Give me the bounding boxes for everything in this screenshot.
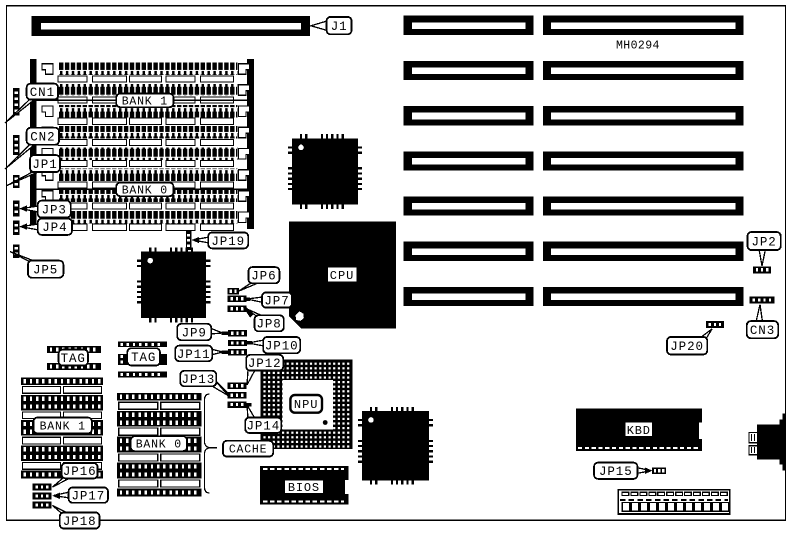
svg-text:TAG: TAG [131,351,156,365]
svg-text:JP19: JP19 [211,235,245,249]
svg-text:MH0294: MH0294 [616,40,660,53]
svg-text:CN2: CN2 [30,131,55,145]
svg-text:JP3: JP3 [42,204,67,218]
svg-text:TAG: TAG [61,352,86,366]
svg-text:JP4: JP4 [42,221,67,235]
svg-text:JP15: JP15 [599,465,633,479]
svg-text:BANK 0: BANK 0 [136,439,182,452]
svg-text:BANK 1: BANK 1 [122,95,168,108]
svg-text:JP7: JP7 [264,294,289,308]
svg-text:JP11: JP11 [177,348,211,362]
svg-text:JP1: JP1 [32,158,57,172]
svg-text:NPU: NPU [294,398,319,412]
svg-text:JP14: JP14 [246,420,280,434]
svg-text:JP17: JP17 [71,490,105,504]
svg-text:JP20: JP20 [670,340,704,354]
svg-text:JP16: JP16 [63,465,97,479]
svg-text:JP8: JP8 [256,318,281,332]
svg-text:JP5: JP5 [33,264,58,278]
svg-text:KBD: KBD [627,424,651,438]
svg-text:JP13: JP13 [181,373,215,387]
svg-text:JP18: JP18 [63,515,97,529]
svg-text:JP10: JP10 [265,340,299,354]
svg-text:BANK 1: BANK 1 [40,421,86,434]
svg-text:JP9: JP9 [182,326,207,340]
svg-text:CN1: CN1 [30,86,55,100]
svg-text:JP12: JP12 [248,357,282,371]
svg-text:J1: J1 [331,20,348,34]
svg-text:CN3: CN3 [750,324,775,338]
svg-text:CACHE: CACHE [229,444,268,457]
svg-text:BANK 0: BANK 0 [122,184,168,197]
svg-text:BIOS: BIOS [288,481,320,495]
svg-text:JP6: JP6 [251,270,276,284]
svg-text:JP2: JP2 [751,235,776,249]
svg-text:CPU: CPU [330,269,355,283]
